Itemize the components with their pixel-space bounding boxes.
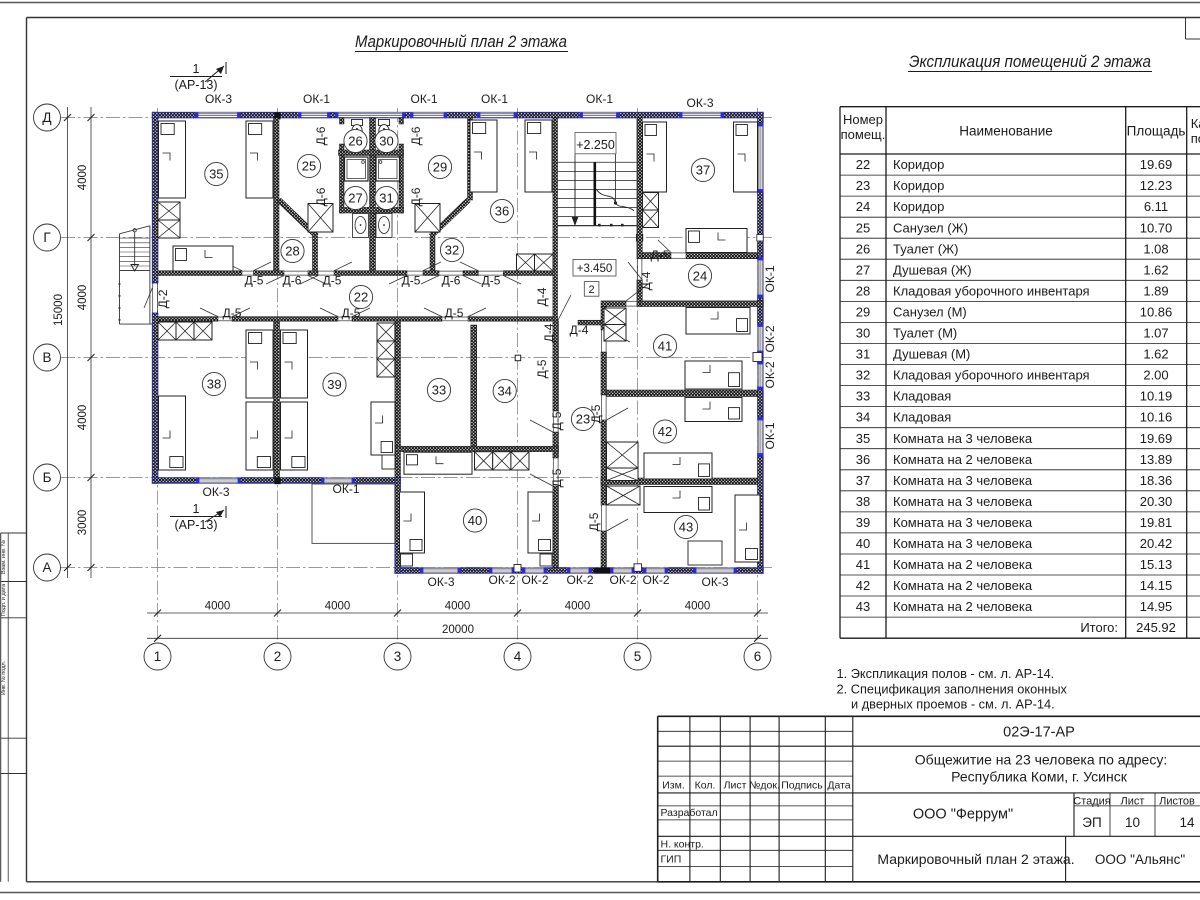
- svg-text:2: 2: [588, 284, 594, 296]
- svg-text:4000: 4000: [685, 601, 711, 613]
- svg-text:Республика Коми, г. Усинск: Республика Коми, г. Усинск: [951, 769, 1128, 785]
- svg-text:Кладовая: Кладовая: [893, 389, 951, 404]
- svg-text:19.81: 19.81: [1140, 515, 1173, 530]
- svg-text:Листов: Листов: [1159, 796, 1195, 808]
- svg-text:Санузел (Ж): Санузел (Ж): [893, 220, 968, 235]
- svg-text:ОК-3: ОК-3: [687, 96, 714, 110]
- svg-text:ОК-2: ОК-2: [489, 573, 516, 587]
- svg-text:32: 32: [445, 243, 459, 258]
- svg-text:Кол.: Кол.: [695, 780, 716, 792]
- svg-text:36: 36: [856, 452, 870, 467]
- svg-text:27: 27: [348, 191, 362, 206]
- svg-text:25: 25: [302, 159, 316, 174]
- svg-text:по: по: [1191, 131, 1200, 146]
- svg-text:Д-5: Д-5: [323, 274, 342, 288]
- svg-text:ОК-1: ОК-1: [411, 92, 438, 106]
- svg-text:4000: 4000: [77, 165, 89, 191]
- svg-text:ОК-3: ОК-3: [428, 575, 455, 589]
- svg-text:1. Экспликация полов - см. л.: 1. Экспликация полов - см. л. АР-14.: [837, 666, 1055, 681]
- svg-text:помещ.: помещ.: [841, 127, 886, 142]
- svg-text:Душевая (Ж): Душевая (Ж): [893, 262, 972, 277]
- svg-text:19.69: 19.69: [1140, 431, 1173, 446]
- svg-text:43: 43: [856, 599, 870, 614]
- svg-text:34: 34: [497, 384, 511, 399]
- svg-text:4000: 4000: [77, 285, 89, 311]
- svg-text:1.08: 1.08: [1143, 241, 1168, 256]
- svg-text:Комната на 2 человека: Комната на 2 человека: [893, 452, 1033, 467]
- svg-text:1.07: 1.07: [1143, 326, 1168, 341]
- svg-text:1.89: 1.89: [1143, 283, 1168, 298]
- svg-text:Д-6: Д-6: [314, 126, 328, 145]
- svg-text:Д-5: Д-5: [651, 248, 670, 262]
- svg-text:14.95: 14.95: [1140, 599, 1173, 614]
- svg-text:Д-5: Д-5: [535, 359, 549, 378]
- svg-text:Комната на 3 человека: Комната на 3 человека: [893, 515, 1033, 530]
- svg-text:ОК-3: ОК-3: [702, 575, 729, 589]
- svg-text:4000: 4000: [205, 601, 231, 613]
- svg-text:Номер: Номер: [843, 112, 883, 127]
- svg-text:10.16: 10.16: [1140, 410, 1173, 425]
- svg-text:26: 26: [348, 134, 362, 149]
- svg-text:Площадь: Площадь: [1127, 124, 1186, 139]
- svg-text:Разработал: Разработал: [661, 807, 718, 819]
- svg-text:Д-5: Д-5: [245, 274, 264, 288]
- svg-text:29: 29: [856, 304, 870, 319]
- svg-text:ОК-3: ОК-3: [205, 92, 232, 106]
- svg-text:Лист: Лист: [1121, 796, 1145, 808]
- svg-text:Д-4: Д-4: [542, 323, 556, 342]
- svg-text:А: А: [42, 560, 51, 575]
- svg-text:ОК-1: ОК-1: [763, 265, 777, 292]
- svg-text:Д-6: Д-6: [442, 274, 461, 288]
- svg-text:Д-5: Д-5: [550, 468, 564, 487]
- svg-text:ОК-2: ОК-2: [522, 573, 549, 587]
- svg-text:ОК-2: ОК-2: [567, 573, 594, 587]
- svg-text:2: 2: [274, 649, 282, 664]
- svg-text:Д-5: Д-5: [482, 274, 501, 288]
- svg-text:ОК-2: ОК-2: [763, 325, 777, 352]
- svg-text:Туалет (Ж): Туалет (Ж): [893, 241, 958, 256]
- svg-text:Д-6: Д-6: [314, 187, 328, 206]
- svg-text:ОК-1: ОК-1: [481, 92, 508, 106]
- svg-text:37: 37: [856, 473, 870, 488]
- svg-text:Маркировочный план 2 этажа.: Маркировочный план 2 этажа.: [877, 851, 1074, 867]
- svg-text:Кладовая уборочного инвентаря: Кладовая уборочного инвентаря: [893, 368, 1090, 383]
- svg-text:20.42: 20.42: [1140, 536, 1173, 551]
- svg-text:39: 39: [327, 377, 341, 392]
- svg-text:32: 32: [856, 368, 870, 383]
- svg-text:Комната на 3 человека: Комната на 3 человека: [893, 494, 1033, 509]
- svg-text:Наименование: Наименование: [959, 124, 1053, 139]
- svg-text:Д-5: Д-5: [445, 306, 464, 320]
- svg-text:38: 38: [856, 494, 870, 509]
- svg-text:Лист: Лист: [724, 780, 747, 792]
- svg-text:4000: 4000: [325, 601, 351, 613]
- svg-text:Д-5: Д-5: [223, 306, 242, 320]
- svg-text:4000: 4000: [77, 405, 89, 431]
- svg-text:Комната на 2 человека: Комната на 2 человека: [893, 578, 1033, 593]
- svg-text:22: 22: [856, 157, 870, 172]
- svg-text:Душевая (М): Душевая (М): [893, 347, 970, 362]
- svg-text:6.11: 6.11: [1144, 199, 1168, 214]
- svg-text:36: 36: [495, 204, 509, 219]
- svg-text:ООО "Феррум": ООО "Феррум": [913, 807, 1013, 823]
- svg-text:+3.450: +3.450: [577, 263, 613, 275]
- svg-text:(АР-13): (АР-13): [174, 78, 217, 92]
- svg-text:Д-5: Д-5: [550, 411, 564, 430]
- svg-text:15000: 15000: [53, 294, 65, 326]
- svg-text:20.30: 20.30: [1140, 494, 1173, 509]
- svg-text:3: 3: [394, 649, 402, 664]
- svg-text:4: 4: [514, 649, 522, 664]
- svg-text:38: 38: [207, 377, 221, 392]
- svg-text:10: 10: [1125, 815, 1140, 830]
- svg-text:Коридор: Коридор: [893, 199, 944, 214]
- svg-text:26: 26: [856, 241, 870, 256]
- svg-text:28: 28: [856, 283, 870, 298]
- svg-text:Итого:: Итого:: [1080, 620, 1118, 635]
- svg-text:18.36: 18.36: [1140, 473, 1173, 488]
- svg-text:Подп. и дата: Подп. и дата: [1, 583, 7, 616]
- svg-text:41: 41: [856, 557, 870, 572]
- svg-text:14.15: 14.15: [1140, 578, 1173, 593]
- svg-text:Д: Д: [42, 110, 51, 125]
- svg-text:Д-2: Д-2: [156, 289, 170, 308]
- svg-text:13.89: 13.89: [1140, 452, 1173, 467]
- svg-text:Коридор: Коридор: [893, 157, 944, 172]
- svg-text:Подпись: Подпись: [781, 780, 823, 792]
- svg-text:40: 40: [856, 536, 870, 551]
- svg-text:19.69: 19.69: [1140, 157, 1173, 172]
- svg-text:Общежитие на 23 человека по ад: Общежитие на 23 человека по адресу:: [915, 752, 1167, 768]
- svg-text:1: 1: [193, 62, 200, 76]
- svg-text:28: 28: [285, 244, 299, 259]
- svg-text:33: 33: [856, 389, 870, 404]
- svg-text:Коридор: Коридор: [893, 178, 944, 193]
- svg-text:Б: Б: [43, 470, 52, 485]
- svg-text:Комната на 3 человека: Комната на 3 человека: [893, 473, 1033, 488]
- svg-text:35: 35: [209, 167, 223, 182]
- svg-text:20000: 20000: [442, 624, 474, 636]
- svg-text:27: 27: [856, 262, 870, 277]
- svg-text:Д-6: Д-6: [283, 274, 302, 288]
- svg-text:ОК-1: ОК-1: [586, 92, 613, 106]
- svg-text:1.62: 1.62: [1143, 347, 1168, 362]
- svg-text:Д-5: Д-5: [342, 306, 361, 320]
- svg-text:34: 34: [856, 410, 870, 425]
- svg-text:33: 33: [432, 383, 446, 398]
- svg-text:Инв. № подл.: Инв. № подл.: [1, 660, 7, 695]
- svg-text:Экспликация помещений 2 этажа: Экспликация помещений 2 этажа: [909, 52, 1151, 71]
- svg-text:Комната на 2 человека: Комната на 2 человека: [893, 599, 1033, 614]
- svg-text:ОК-1: ОК-1: [303, 92, 330, 106]
- svg-text:24: 24: [693, 268, 707, 283]
- svg-text:Кладовая: Кладовая: [893, 410, 951, 425]
- svg-text:12.23: 12.23: [1140, 178, 1173, 193]
- svg-text:41: 41: [658, 339, 672, 354]
- svg-text:Д-6: Д-6: [409, 126, 423, 145]
- svg-text:30: 30: [379, 134, 393, 149]
- svg-text:Комната на 3 человека: Комната на 3 человека: [893, 536, 1033, 551]
- svg-text:Маркировочный план 2 этажа: Маркировочный план 2 этажа: [355, 32, 567, 51]
- svg-text:ГИП: ГИП: [661, 854, 682, 866]
- svg-text:31: 31: [856, 347, 870, 362]
- svg-text:5: 5: [634, 649, 642, 664]
- svg-text:Д-4: Д-4: [535, 287, 549, 306]
- svg-text:Д-4: Д-4: [639, 271, 653, 290]
- svg-text:1.62: 1.62: [1143, 262, 1168, 277]
- svg-text:Д-5: Д-5: [589, 404, 603, 423]
- svg-text:ОК-2: ОК-2: [610, 573, 637, 587]
- svg-text:Д-5: Д-5: [402, 274, 421, 288]
- svg-text:Комната на 2 человека: Комната на 2 человека: [893, 557, 1033, 572]
- svg-text:ОК-2: ОК-2: [763, 361, 777, 388]
- svg-text:Кладовая уборочного инвентаря: Кладовая уборочного инвентаря: [893, 283, 1090, 298]
- svg-text:Санузел (М): Санузел (М): [893, 304, 967, 319]
- svg-text:02Э-17-АР: 02Э-17-АР: [1003, 725, 1075, 741]
- svg-text:(АР-13): (АР-13): [174, 518, 217, 532]
- svg-text:4000: 4000: [445, 601, 471, 613]
- svg-text:Д-6: Д-6: [409, 187, 423, 206]
- svg-text:35: 35: [856, 431, 870, 446]
- svg-text:В: В: [42, 350, 51, 365]
- svg-text:4000: 4000: [565, 601, 591, 613]
- svg-text:2. Спецификация заполнения око: 2. Спецификация заполнения оконных: [837, 682, 1068, 697]
- svg-text:Н. контр.: Н. контр.: [661, 839, 704, 851]
- svg-text:37: 37: [696, 163, 710, 178]
- svg-text:31: 31: [379, 191, 393, 206]
- svg-text:42: 42: [658, 424, 672, 439]
- svg-text:Стадия: Стадия: [1073, 796, 1111, 808]
- svg-text:30: 30: [856, 326, 870, 341]
- svg-text:ОК-3: ОК-3: [203, 485, 230, 499]
- svg-text:22: 22: [354, 290, 368, 305]
- svg-text:10.86: 10.86: [1140, 304, 1173, 319]
- svg-text:40: 40: [468, 513, 482, 528]
- svg-text:23: 23: [856, 178, 870, 193]
- svg-text:10.19: 10.19: [1140, 389, 1173, 404]
- svg-text:39: 39: [856, 515, 870, 530]
- svg-text:ОК-1: ОК-1: [763, 422, 777, 449]
- svg-text:Ка: Ка: [1191, 116, 1200, 131]
- svg-text:ОК-2: ОК-2: [643, 573, 670, 587]
- svg-text:ОК-1: ОК-1: [333, 482, 360, 496]
- svg-text:Г: Г: [43, 230, 51, 245]
- svg-text:Д-4: Д-4: [570, 323, 589, 337]
- svg-text:Д-5: Д-5: [587, 512, 601, 531]
- svg-text:10.70: 10.70: [1140, 220, 1173, 235]
- svg-text:ЭП: ЭП: [1082, 815, 1101, 830]
- svg-text:1: 1: [193, 502, 200, 516]
- svg-text:24: 24: [856, 199, 870, 214]
- svg-text:15.13: 15.13: [1140, 557, 1173, 572]
- svg-text:3000: 3000: [77, 510, 89, 536]
- svg-text:43: 43: [679, 520, 693, 535]
- svg-text:Изм.: Изм.: [662, 780, 685, 792]
- svg-text:Дата: Дата: [827, 780, 850, 792]
- svg-text:№док.: №док.: [749, 780, 780, 792]
- svg-text:2.00: 2.00: [1143, 368, 1168, 383]
- svg-text:29: 29: [433, 160, 447, 175]
- svg-text:6: 6: [754, 649, 762, 664]
- svg-text:+2.250: +2.250: [576, 138, 615, 152]
- svg-text:14: 14: [1179, 815, 1195, 830]
- svg-text:Взам. инв. №: Взам. инв. №: [1, 540, 7, 574]
- svg-text:42: 42: [856, 578, 870, 593]
- svg-text:245.92: 245.92: [1136, 620, 1176, 635]
- svg-text:ООО "Альянс": ООО "Альянс": [1095, 852, 1185, 867]
- svg-text:Туалет (М): Туалет (М): [893, 326, 957, 341]
- svg-text:Комната на 3 человека: Комната на 3 человека: [893, 431, 1033, 446]
- svg-text:25: 25: [856, 220, 870, 235]
- svg-text:и дверных проемов - см. л. АР-: и дверных проемов - см. л. АР-14.: [851, 697, 1055, 712]
- svg-text:1: 1: [154, 649, 162, 664]
